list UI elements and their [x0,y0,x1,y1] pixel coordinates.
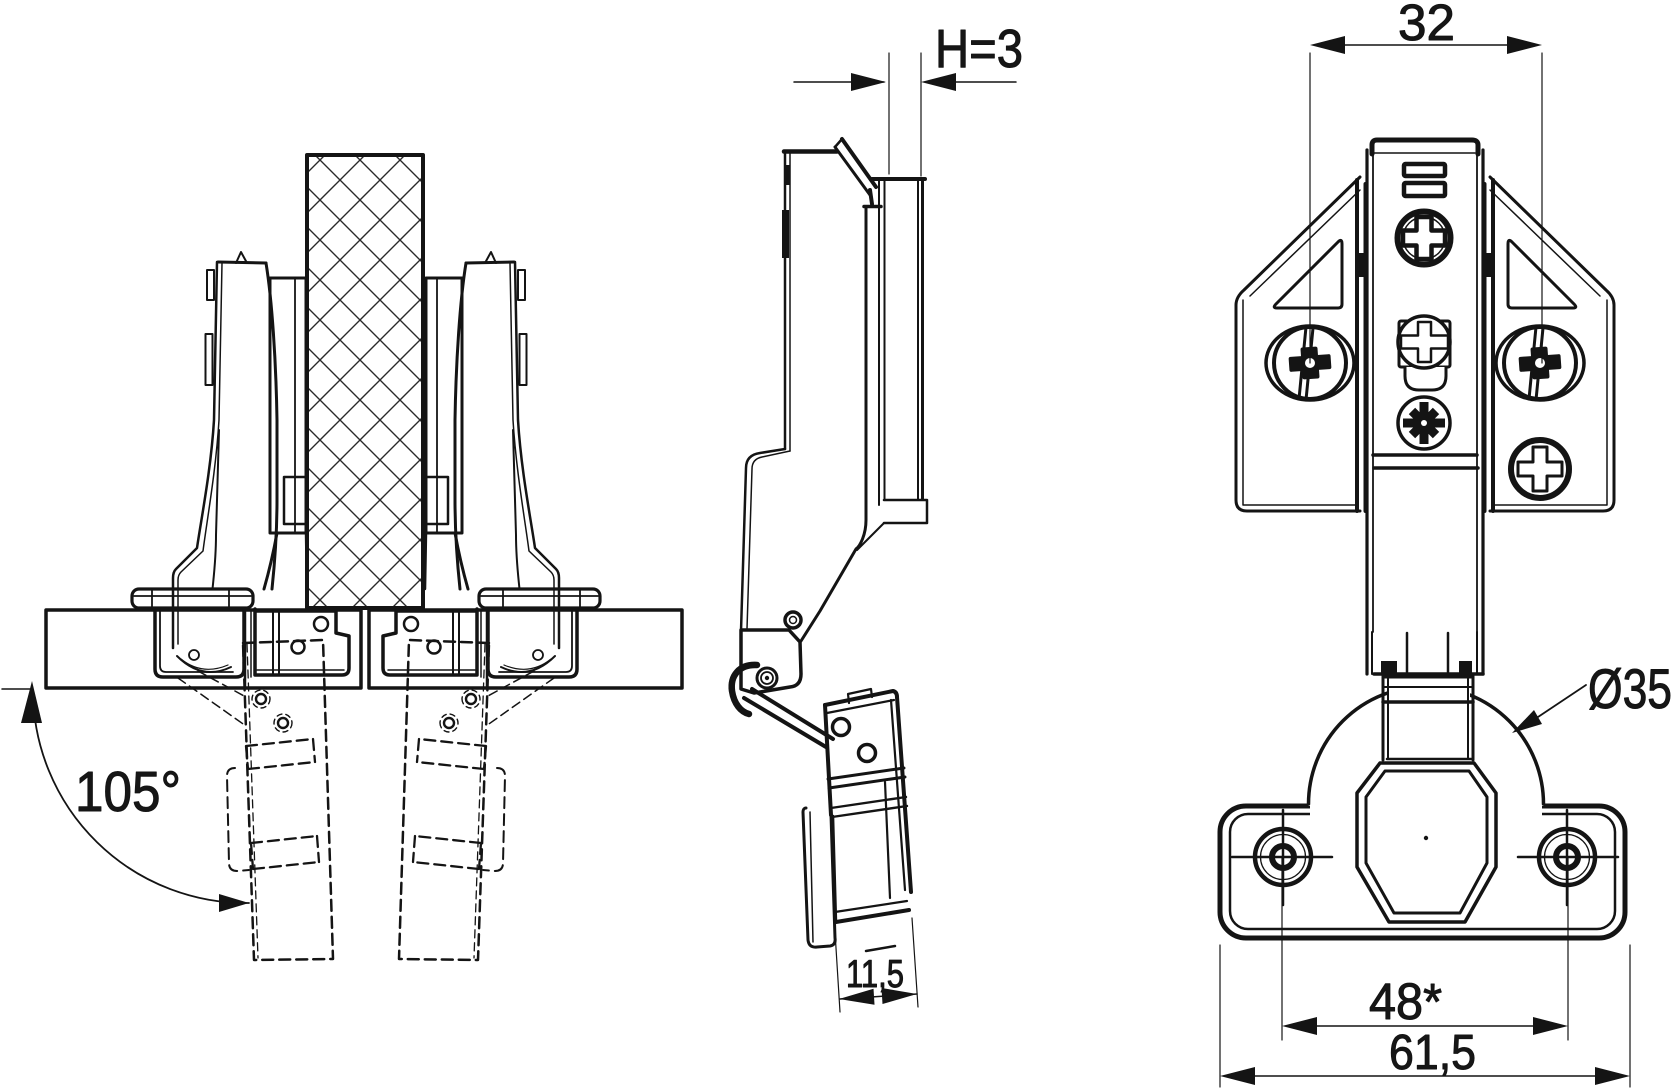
svg-text:H=3: H=3 [935,19,1023,79]
svg-text:32: 32 [1398,0,1455,51]
svg-text:61,5: 61,5 [1389,1026,1476,1080]
svg-text:Ø35: Ø35 [1588,657,1672,720]
svg-text:48*: 48* [1369,973,1442,1030]
svg-text:11,5: 11,5 [846,953,904,996]
svg-text:105°: 105° [75,760,181,824]
